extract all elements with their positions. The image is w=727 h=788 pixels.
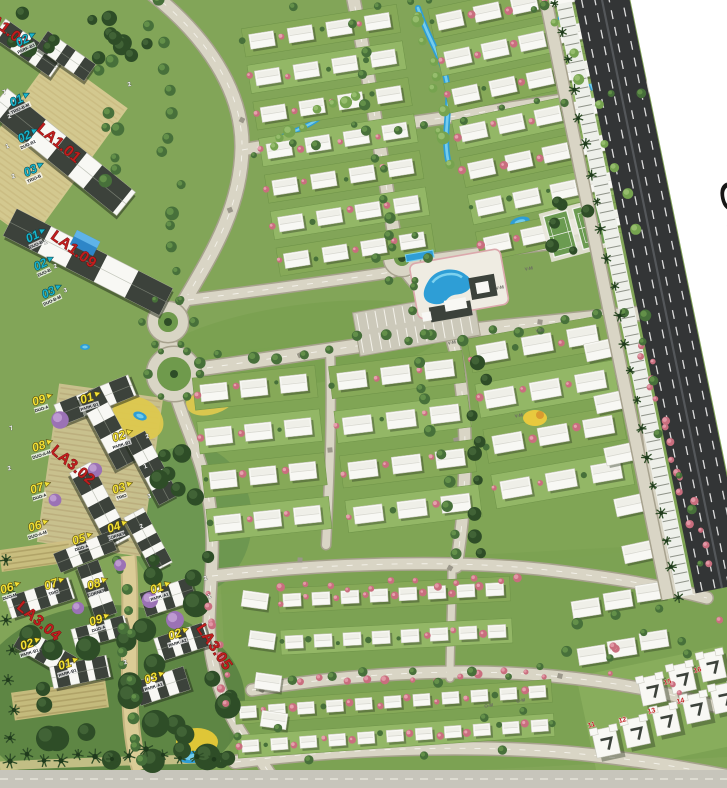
villa: [293, 505, 324, 528]
villa: [209, 469, 240, 492]
villa: [391, 453, 424, 476]
villa: [204, 426, 235, 449]
roundabout: [152, 352, 196, 396]
villa: [372, 630, 393, 647]
villa: [254, 672, 285, 694]
villa: [283, 593, 304, 610]
villa: [353, 504, 386, 527]
villa: [312, 591, 333, 608]
villa: [279, 374, 310, 397]
villa: [288, 461, 319, 484]
villa: [380, 364, 413, 387]
villa: [348, 459, 381, 482]
villa: [341, 590, 362, 607]
villa: [241, 590, 272, 612]
villa: [200, 382, 231, 405]
villa: [399, 587, 420, 604]
masterplan-map: LA1.02LA1.01LA1.09LA3.02LA3.04LA3.0502PA…: [0, 0, 727, 788]
villa: [397, 498, 430, 521]
villa: [456, 584, 477, 601]
villa: [342, 414, 375, 437]
villa: [284, 417, 315, 440]
villa: [401, 629, 422, 646]
playground: [523, 410, 547, 426]
villa: [213, 513, 244, 536]
villa: [343, 632, 364, 649]
villa: [386, 409, 419, 432]
villa: [485, 582, 506, 599]
villa: [424, 359, 457, 382]
villa: [459, 626, 480, 643]
villa: [430, 627, 451, 644]
villa: [337, 370, 370, 393]
villa: [249, 465, 280, 488]
villa: [244, 421, 275, 444]
villa: [314, 633, 335, 650]
villa: [253, 509, 284, 532]
villa: [285, 635, 306, 652]
map-canvas: LA1.02LA1.01LA1.09LA3.02LA3.04LA3.0502PA…: [0, 0, 727, 788]
villa: [488, 624, 509, 641]
villa: [239, 378, 270, 401]
villa: [248, 630, 279, 652]
villa: [429, 403, 462, 426]
